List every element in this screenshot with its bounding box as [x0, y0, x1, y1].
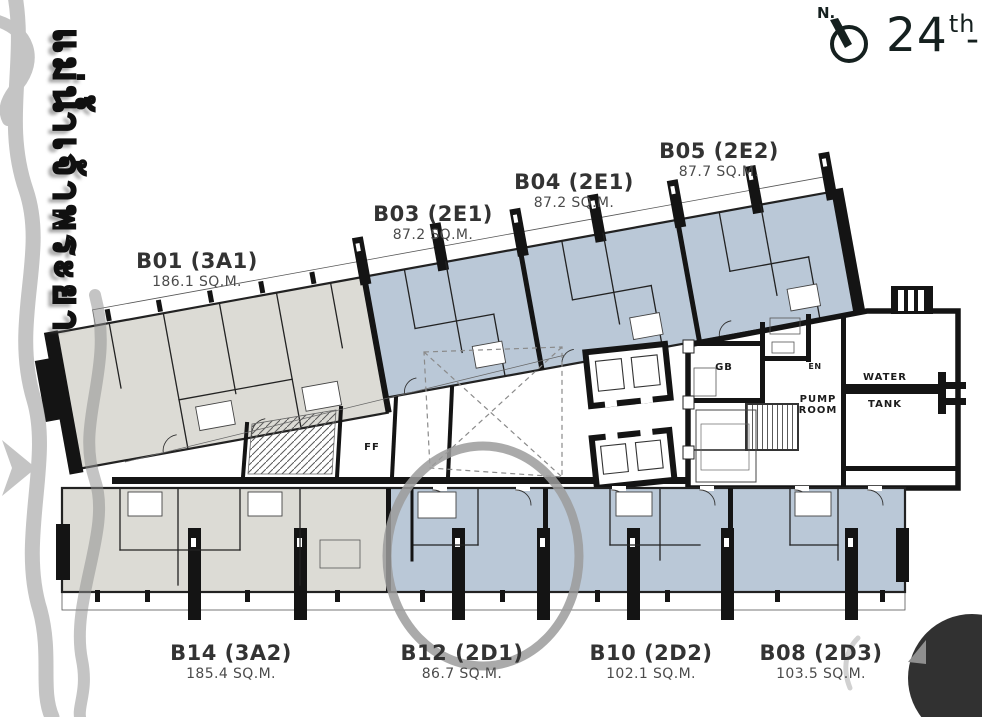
service-stair — [746, 404, 798, 450]
water-tank-line2: TANK — [863, 399, 907, 410]
room-label-water-tank: WATER TANK — [863, 372, 907, 410]
unit-label-b05: B05 (2E2) 87.7 SQ.M. — [659, 139, 779, 180]
floor-plan-drawing — [0, 0, 982, 717]
unit-code: B04 (2E1) — [514, 170, 634, 194]
lower-wing — [56, 486, 909, 620]
north-label: N. — [817, 4, 835, 22]
unit-code: B03 (2E1) — [373, 202, 493, 226]
unit-code: B05 (2E2) — [659, 139, 779, 163]
river-name-watermark: แม่น้ำเจ้าพระยา — [48, 28, 86, 335]
room-label-gb: GB — [715, 362, 733, 373]
unit-area: 185.4 SQ.M. — [170, 666, 292, 682]
unit-area: 103.5 SQ.M. — [760, 666, 883, 682]
elevator-core-lower — [591, 426, 674, 488]
unit-area: 87.2 SQ.M. — [373, 227, 493, 243]
unit-area: 87.7 SQ.M. — [659, 164, 779, 180]
unit-code: B10 (2D2) — [590, 641, 713, 665]
unit-label-b08: B08 (2D3) 103.5 SQ.M. — [760, 641, 883, 682]
unit-area: 102.1 SQ.M. — [590, 666, 713, 682]
unit-area: 186.1 SQ.M. — [136, 274, 258, 290]
unit-label-b01: B01 (3A1) 186.1 SQ.M. — [136, 249, 258, 290]
floor-number: 24 — [886, 8, 948, 63]
north-compass — [830, 18, 866, 61]
unit-area: 86.7 SQ.M. — [401, 666, 524, 682]
unit-code: B01 (3A1) — [136, 249, 258, 273]
corner-watermark — [908, 614, 982, 717]
unit-code: B08 (2D3) — [760, 641, 883, 665]
unit-label-b12: B12 (2D1) 86.7 SQ.M. — [401, 641, 524, 682]
water-tank-line1: WATER — [863, 372, 907, 383]
floor-plan-page: { "page": { "background": "#ffffff" }, "… — [0, 0, 982, 717]
pump-room-line2: ROOM — [799, 405, 838, 416]
floor-indicator: 24th — [886, 12, 974, 59]
elevator-core-upper — [585, 344, 671, 409]
unit-code: B12 (2D1) — [401, 641, 524, 665]
unit-label-b03: B03 (2E1) 87.2 SQ.M. — [373, 202, 493, 243]
room-label-pump-room: PUMP ROOM — [799, 394, 838, 416]
floor-range-dash: - — [966, 22, 979, 58]
room-label-ff: FF — [364, 442, 380, 453]
room-label-en: EN — [808, 362, 821, 371]
corner-watermark-triangle — [908, 640, 926, 664]
unit-label-b10: B10 (2D2) 102.1 SQ.M. — [590, 641, 713, 682]
unit-label-b14: B14 (3A2) 185.4 SQ.M. — [170, 641, 292, 682]
pump-room-line1: PUMP — [799, 394, 838, 405]
unit-label-b04: B04 (2E1) 87.2 SQ.M. — [514, 170, 634, 211]
unit-code: B14 (3A2) — [170, 641, 292, 665]
unit-area: 87.2 SQ.M. — [514, 195, 634, 211]
